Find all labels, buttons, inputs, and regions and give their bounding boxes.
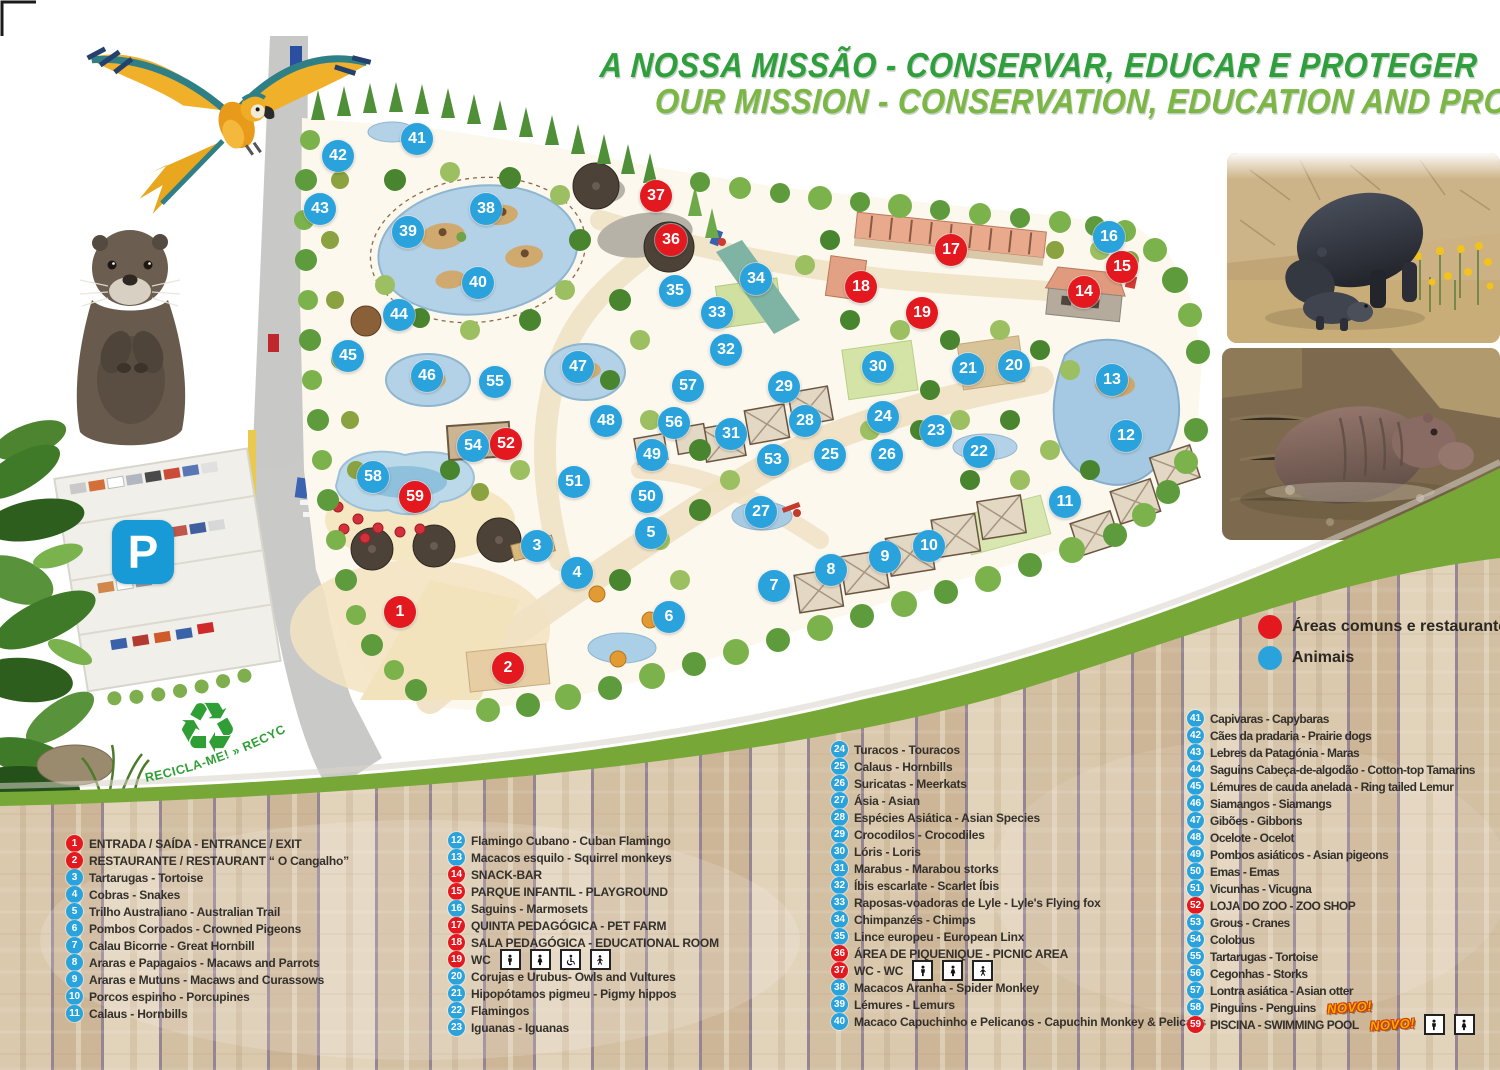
legend-item-number: 21 <box>448 985 465 1002</box>
legend-item-label: Lémures - Lemurs <box>854 998 955 1012</box>
legend-item-label: Lince europeu - European Linx <box>854 930 1024 944</box>
legend-item-label: Tartarugas - Tortoise <box>89 871 203 885</box>
legend-item-label: Lebres da Patagónia - Maras <box>1210 746 1359 760</box>
legend-item-number: 19 <box>448 951 465 968</box>
legend-item-number: 27 <box>831 792 848 809</box>
legend-item-label: Chimpanzés - Chimps <box>854 913 976 927</box>
key-common-areas: Áreas comuns e restaurantes <box>1258 615 1500 639</box>
legend-item-number: 41 <box>1187 710 1204 727</box>
legend-item-number: 24 <box>831 741 848 758</box>
legend-item-label: Corujas e Urubus- Owls and Vultures <box>471 970 676 984</box>
legend-item-label: Íbis escarlate - Scarlet Íbis <box>854 879 999 893</box>
legend-item-8: 8Araras e Papagaios - Macaws and Parrots <box>66 954 349 971</box>
legend-item-number: 16 <box>448 900 465 917</box>
legend-item-number: 43 <box>1187 744 1204 761</box>
legend-item-label: Macacos Aranha - Spider Monkey <box>854 981 1039 995</box>
legend-item-label: Porcos espinho - Porcupines <box>89 990 250 1004</box>
legend-item-number: 54 <box>1187 931 1204 948</box>
legend-item-label: ÁREA DE PIQUENIQUE - PICNIC AREA <box>854 947 1068 961</box>
legend-item-number: 28 <box>831 809 848 826</box>
recycle-logo: ♻ RECICLA-ME! » RECYCLE ME! <box>118 660 328 795</box>
legend-item-label: LOJA DO ZOO - ZOO SHOP <box>1210 899 1355 913</box>
legend-item-32: 32Íbis escarlate - Scarlet Íbis <box>831 877 1206 894</box>
legend-item-number: 17 <box>448 917 465 934</box>
legend-item-number: 1 <box>66 835 83 852</box>
legend-item-57: 57Lontra asiática - Asian otter <box>1187 982 1475 999</box>
legend-item-label: SNACK-BAR <box>471 868 542 882</box>
legend-item-label: Calaus - Hornbills <box>89 1007 187 1021</box>
legend-item-number: 36 <box>831 945 848 962</box>
legend-item-label: Tartarugas - Tortoise <box>1210 950 1318 964</box>
legend-item-7: 7Calau Bicorne - Great Hornbill <box>66 937 349 954</box>
legend-item-label: Saguins Cabeça-de-algodão - Cotton-top T… <box>1210 763 1475 777</box>
legend-item-label: RESTAURANTE / RESTAURANT “ O Cangalho” <box>89 854 349 868</box>
legend-item-number: 32 <box>831 877 848 894</box>
legend-item-number: 39 <box>831 996 848 1013</box>
legend-item-53: 53Grous - Cranes <box>1187 914 1475 931</box>
legend-item-number: 42 <box>1187 727 1204 744</box>
legend-item-label: Pombos Coroados - Crowned Pigeons <box>89 922 301 936</box>
legend-item-number: 34 <box>831 911 848 928</box>
legend-item-59: 59PISCINA - SWIMMING POOLNOVO! <box>1187 1016 1475 1033</box>
legend-item-33: 33Raposas-voadoras de Lyle - Lyle's Flyi… <box>831 894 1206 911</box>
legend-item-label: Ocelote - Ocelot <box>1210 831 1294 845</box>
legend-item-label: Pombos asiáticos - Asian pigeons <box>1210 848 1388 862</box>
legend-item-47: 47Gibões - Gibbons <box>1187 812 1475 829</box>
legend-item-36: 36ÁREA DE PIQUENIQUE - PICNIC AREA <box>831 945 1206 962</box>
legend-item-label: WC <box>471 953 491 967</box>
woman-icon <box>1454 1014 1475 1035</box>
red-dot-icon <box>1258 615 1282 639</box>
legend-item-3: 3Tartarugas - Tortoise <box>66 869 349 886</box>
legend-item-20: 20Corujas e Urubus- Owls and Vultures <box>448 968 719 985</box>
legend-item-number: 18 <box>448 934 465 951</box>
legend-item-label: Espécies Asiática - Asian Species <box>854 811 1040 825</box>
legend-item-11: 11Calaus - Hornbills <box>66 1005 349 1022</box>
legend-item-4: 4Cobras - Snakes <box>66 886 349 903</box>
legend-item-18: 18SALA PEDAGÓGICA - EDUCATIONAL ROOM <box>448 934 719 951</box>
legend-item-41: 41Capivaras - Capybaras <box>1187 710 1475 727</box>
legend-item-number: 44 <box>1187 761 1204 778</box>
legend-item-label: Lémures de cauda anelada - Ring tailed L… <box>1210 780 1453 794</box>
legend-item-55: 55Tartarugas - Tortoise <box>1187 948 1475 965</box>
legend-item-number: 8 <box>66 954 83 971</box>
legend-item-number: 58 <box>1187 999 1204 1016</box>
legend-item-number: 37 <box>831 962 848 979</box>
legend-item-label: Calau Bicorne - Great Hornbill <box>89 939 254 953</box>
baby-icon <box>590 949 611 970</box>
legend-item-label: Gibões - Gibbons <box>1210 814 1302 828</box>
legend-item-number: 56 <box>1187 965 1204 982</box>
legend-item-19: 19WC <box>448 951 719 968</box>
legend-item-label: Vicunhas - Vicugna <box>1210 882 1311 896</box>
wheelchair-icon <box>560 949 581 970</box>
legend-item-54: 54Colobus <box>1187 931 1475 948</box>
legend-item-label: Cães da pradaria - Prairie dogs <box>1210 729 1371 743</box>
legend-item-35: 35Lince europeu - European Linx <box>831 928 1206 945</box>
legend-item-1: 1ENTRADA / SAÍDA - ENTRANCE / EXIT <box>66 835 349 852</box>
novo-badge: NOVO! <box>1369 1015 1415 1033</box>
legend-item-number: 11 <box>66 1005 83 1022</box>
man-icon <box>500 949 521 970</box>
legend-item-label: Ásia - Asian <box>854 794 920 808</box>
legend-item-48: 48Ocelote - Ocelot <box>1187 829 1475 846</box>
legend-item-label: Hipopótamos pigmeu - Pigmy hippos <box>471 987 676 1001</box>
legend-item-23: 23Iguanas - Iguanas <box>448 1019 719 1036</box>
legend-item-number: 5 <box>66 903 83 920</box>
key-animals-label: Animais <box>1292 649 1354 667</box>
legend-item-26: 26Suricatas - Meerkats <box>831 775 1206 792</box>
legend-item-40: 40Macaco Capuchinho e Pelicanos - Capuch… <box>831 1013 1206 1030</box>
legend-item-number: 3 <box>66 869 83 886</box>
legend-item-label: Calaus - Hornbills <box>854 760 952 774</box>
corner-mark-topleft <box>2 2 36 36</box>
legend-item-number: 35 <box>831 928 848 945</box>
otter-photo <box>77 230 185 445</box>
woman-icon <box>530 949 551 970</box>
legend-item-10: 10Porcos espinho - Porcupines <box>66 988 349 1005</box>
legend-item-number: 20 <box>448 968 465 985</box>
legend-item-label: Pinguins - Penguins <box>1210 1001 1316 1015</box>
legend-item-31: 31Marabus - Marabou storks <box>831 860 1206 877</box>
mission-title-pt: A NOSSA MISSÃO - CONSERVAR, EDUCAR E PRO… <box>599 46 1321 86</box>
legend-item-number: 47 <box>1187 812 1204 829</box>
legend-item-label: PARQUE INFANTIL - PLAYGROUND <box>471 885 668 899</box>
baby-icon <box>972 960 993 981</box>
legend-item-number: 7 <box>66 937 83 954</box>
key-animals: Animais <box>1258 646 1354 670</box>
legend-item-30: 30Lóris - Loris <box>831 843 1206 860</box>
legend-item-number: 12 <box>448 832 465 849</box>
legend-item-39: 39Lémures - Lemurs <box>831 996 1206 1013</box>
flamingos-pond <box>953 434 1017 460</box>
legend-item-label: Lontra asiática - Asian otter <box>1210 984 1353 998</box>
legend-item-number: 51 <box>1187 880 1204 897</box>
legend-item-label: Turacos - Touracos <box>854 743 960 757</box>
legend-item-12: 12Flamingo Cubano - Cuban Flamingo <box>448 832 719 849</box>
legend-item-14: 14SNACK-BAR <box>448 866 719 883</box>
legend-item-number: 13 <box>448 849 465 866</box>
legend-item-label: ENTRADA / SAÍDA - ENTRANCE / EXIT <box>89 837 302 851</box>
legend-item-number: 6 <box>66 920 83 937</box>
legend-item-label: Siamangos - Siamangs <box>1210 797 1331 811</box>
legend-item-number: 25 <box>831 758 848 775</box>
legend-item-number: 55 <box>1187 948 1204 965</box>
legend-item-label: Trilho Australiano - Australian Trail <box>89 905 280 919</box>
zoo-shop-building <box>447 422 511 460</box>
legend-item-number: 40 <box>831 1013 848 1030</box>
legend-item-label: Araras e Papagaios - Macaws and Parrots <box>89 956 319 970</box>
legend-item-number: 22 <box>448 1002 465 1019</box>
novo-badge: NOVO! <box>1326 998 1372 1016</box>
legend-item-label: PISCINA - SWIMMING POOL <box>1210 1018 1359 1032</box>
legend-item-number: 31 <box>831 860 848 877</box>
legend-item-number: 46 <box>1187 795 1204 812</box>
legend-item-label: Araras e Mutuns - Macaws and Curassows <box>89 973 324 987</box>
legend-item-15: 15PARQUE INFANTIL - PLAYGROUND <box>448 883 719 900</box>
legend-item-number: 57 <box>1187 982 1204 999</box>
legend-item-43: 43Lebres da Patagónia - Maras <box>1187 744 1475 761</box>
legend-item-label: Grous - Cranes <box>1210 916 1290 930</box>
legend-item-label: Macacos esquilo - Squirrel monkeys <box>471 851 672 865</box>
legend-item-17: 17QUINTA PEDAGÓGICA - PET FARM <box>448 917 719 934</box>
key-common-label: Áreas comuns e restaurantes <box>1292 618 1500 636</box>
rock <box>37 745 113 785</box>
legend-item-56: 56Cegonhas - Storks <box>1187 965 1475 982</box>
legend-col-3: 24Turacos - Touracos25Calaus - Hornbills… <box>831 741 1206 1030</box>
legend-item-label: Marabus - Marabou storks <box>854 862 999 876</box>
legend-item-34: 34Chimpanzés - Chimps <box>831 911 1206 928</box>
legend-item-label: Capivaras - Capybaras <box>1210 712 1329 726</box>
legend-col-4: 41Capivaras - Capybaras42Cães da pradari… <box>1187 710 1475 1033</box>
legend-item-51: 51Vicunhas - Vicugna <box>1187 880 1475 897</box>
legend-item-number: 38 <box>831 979 848 996</box>
legend-item-9: 9Araras e Mutuns - Macaws and Curassows <box>66 971 349 988</box>
legend-item-42: 42Cães da pradaria - Prairie dogs <box>1187 727 1475 744</box>
legend-item-52: 52LOJA DO ZOO - ZOO SHOP <box>1187 897 1475 914</box>
blue-dot-icon <box>1258 646 1282 670</box>
legend-item-number: 53 <box>1187 914 1204 931</box>
legend-item-6: 6Pombos Coroados - Crowned Pigeons <box>66 920 349 937</box>
legend-item-number: 23 <box>448 1019 465 1036</box>
legend-item-label: Saguins - Marmosets <box>471 902 588 916</box>
man-icon <box>912 960 933 981</box>
legend-item-25: 25Calaus - Hornbills <box>831 758 1206 775</box>
photo-pygmy-hippo-with-baby <box>1227 153 1500 343</box>
legend-item-5: 5Trilho Australiano - Australian Trail <box>66 903 349 920</box>
legend-item-45: 45Lémures de cauda anelada - Ring tailed… <box>1187 778 1475 795</box>
legend-item-number: 29 <box>831 826 848 843</box>
legend-item-label: Cegonhas - Storks <box>1210 967 1308 981</box>
man-icon <box>1424 1014 1445 1035</box>
legend-col-1: 1ENTRADA / SAÍDA - ENTRANCE / EXIT2RESTA… <box>66 835 349 1022</box>
lake-hut <box>351 306 381 336</box>
legend-item-49: 49Pombos asiáticos - Asian pigeons <box>1187 846 1475 863</box>
legend-item-24: 24Turacos - Touracos <box>831 741 1206 758</box>
legend-item-label: QUINTA PEDAGÓGICA - PET FARM <box>471 919 666 933</box>
legend-item-number: 45 <box>1187 778 1204 795</box>
entrance-building <box>466 644 550 692</box>
legend-col-2: 12Flamingo Cubano - Cuban Flamingo13Maca… <box>448 832 719 1036</box>
educational-room-building <box>825 256 866 301</box>
legend-item-44: 44Saguins Cabeça-de-algodão - Cotton-top… <box>1187 761 1475 778</box>
legend-item-label: WC - WC <box>854 964 903 978</box>
snack-bar-building <box>1043 266 1128 322</box>
legend-item-label: Iguanas - Iguanas <box>471 1021 569 1035</box>
legend-item-number: 9 <box>66 971 83 988</box>
legend-item-46: 46Siamangos - Siamangs <box>1187 795 1475 812</box>
legend-item-label: Crocodilos - Crocodiles <box>854 828 985 842</box>
legend-item-number: 33 <box>831 894 848 911</box>
legend-item-27: 27Ásia - Asian <box>831 792 1206 809</box>
legend-item-37: 37WC - WC <box>831 962 1206 979</box>
legend-item-label: Lóris - Loris <box>854 845 921 859</box>
legend-item-number: 2 <box>66 852 83 869</box>
car <box>268 334 279 352</box>
legend-item-number: 26 <box>831 775 848 792</box>
legend-item-number: 50 <box>1187 863 1204 880</box>
legend-item-label: Flamingos <box>471 1004 529 1018</box>
legend-item-29: 29Crocodilos - Crocodiles <box>831 826 1206 843</box>
legend-item-label: Emas - Emas <box>1210 865 1279 879</box>
legend-item-number: 4 <box>66 886 83 903</box>
legend-item-label: Cobras - Snakes <box>89 888 180 902</box>
legend-item-number: 59 <box>1187 1016 1204 1033</box>
legend-item-label: Raposas-voadoras de Lyle - Lyle's Flying… <box>854 896 1101 910</box>
legend-item-number: 14 <box>448 866 465 883</box>
legend-item-label: Colobus <box>1210 933 1255 947</box>
legend-item-number: 15 <box>448 883 465 900</box>
legend-item-13: 13Macacos esquilo - Squirrel monkeys <box>448 849 719 866</box>
zoo-map-poster: A NOSSA MISSÃO - CONSERVAR, EDUCAR E PRO… <box>0 0 1500 1070</box>
legend-item-2: 2RESTAURANTE / RESTAURANT “ O Cangalho” <box>66 852 349 869</box>
woman-icon <box>942 960 963 981</box>
legend-item-label: SALA PEDAGÓGICA - EDUCATIONAL ROOM <box>471 936 719 950</box>
legend-item-label: Suricatas - Meerkats <box>854 777 967 791</box>
asia-pond <box>732 502 792 530</box>
legend-item-16: 16Saguins - Marmosets <box>448 900 719 917</box>
legend-item-50: 50Emas - Emas <box>1187 863 1475 880</box>
legend-item-38: 38Macacos Aranha - Spider Monkey <box>831 979 1206 996</box>
legend-item-label: Macaco Capuchinho e Pelicanos - Capuchin… <box>854 1015 1206 1029</box>
siamang-pond <box>386 354 470 406</box>
legend-item-number: 30 <box>831 843 848 860</box>
legend-item-number: 52 <box>1187 897 1204 914</box>
parking-sign: P <box>112 520 174 584</box>
legend-item-22: 22Flamingos <box>448 1002 719 1019</box>
legend-item-21: 21Hipopótamos pigmeu - Pigmy hippos <box>448 985 719 1002</box>
legend-item-label: Flamingo Cubano - Cuban Flamingo <box>471 834 671 848</box>
legend-item-number: 48 <box>1187 829 1204 846</box>
legend-item-number: 10 <box>66 988 83 1005</box>
legend-item-28: 28Espécies Asiática - Asian Species <box>831 809 1206 826</box>
mission-title-en: OUR MISSION - CONSERVATION, EDUCATION AN… <box>654 82 1476 122</box>
legend-item-number: 49 <box>1187 846 1204 863</box>
